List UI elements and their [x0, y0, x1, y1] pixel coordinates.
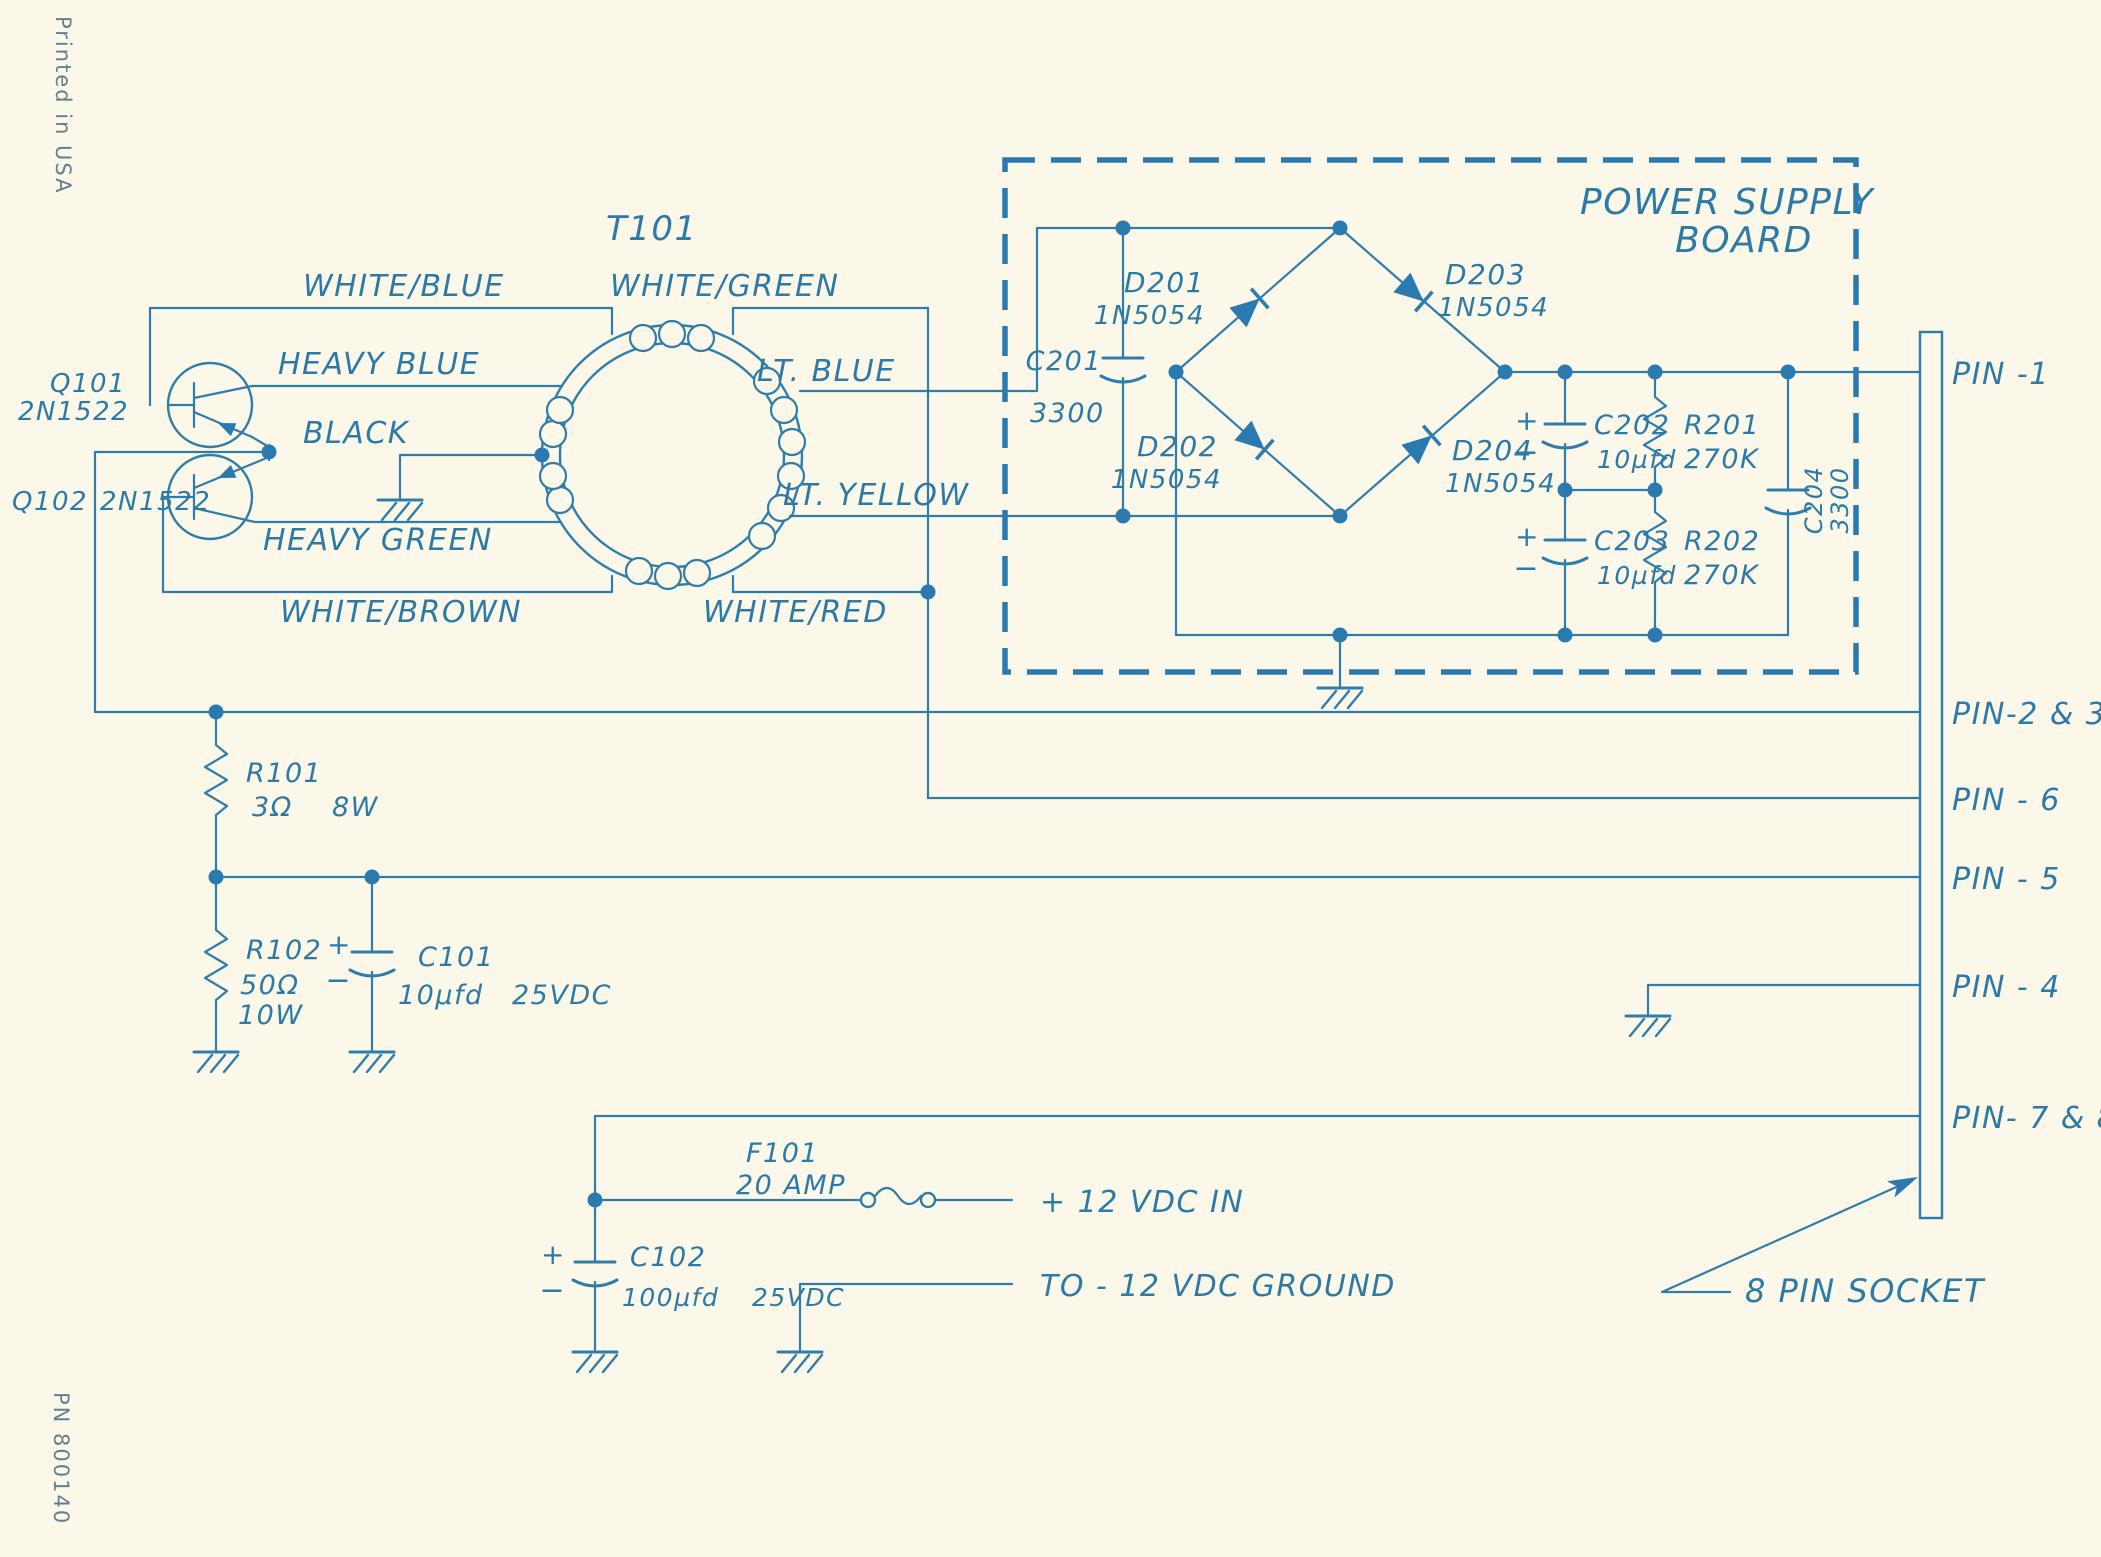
diode-d201-icon	[1229, 289, 1268, 328]
c102-minus-sign: −	[539, 1273, 566, 1308]
c101-ref-label: C101	[418, 942, 494, 973]
black-ground-icon	[378, 500, 422, 520]
d202-part-label: 1N5054	[1111, 465, 1222, 495]
pin5-label: PIN - 5	[1952, 862, 2061, 897]
c101-ground-icon	[350, 1052, 394, 1072]
d203-part-label: 1N5054	[1438, 293, 1549, 323]
c203-minus-sign: −	[1513, 551, 1540, 586]
pin4-ground-icon	[1626, 1016, 1670, 1036]
schematic-drawing: Printed in USA PN 800140 Q101 2N1522 Q10…	[0, 0, 2101, 1557]
socket-label: 8 PIN SOCKET	[1745, 1272, 1986, 1310]
c102-ground-icon	[573, 1352, 617, 1372]
capacitor-c203	[1543, 490, 1587, 635]
q101-part-label: 2N1522	[18, 397, 129, 427]
white-red-label: WHITE/RED	[703, 595, 888, 630]
transistor-q101	[168, 363, 269, 447]
c202-plus-sign: +	[1515, 404, 1540, 437]
c101-rating-label: 25VDC	[512, 980, 612, 1011]
board-ground-icon	[1318, 688, 1362, 708]
minus12-ground-icon	[778, 1352, 822, 1372]
board-title-line2: BOARD	[1675, 220, 1813, 261]
c202-minus-sign: −	[1513, 435, 1540, 470]
r102-power-label: 10W	[238, 1000, 304, 1031]
resistor-r102	[205, 877, 227, 1050]
pin6-label: PIN - 6	[1952, 783, 2061, 818]
q102-part-label: 2N1522	[100, 487, 211, 517]
q101-emitter-arrow-icon	[215, 417, 236, 437]
r201-value-label: 270K	[1684, 444, 1760, 475]
f101-value-label: 20 AMP	[736, 1170, 846, 1201]
q102-emitter-arrow-icon	[215, 465, 236, 485]
c101-minus-sign: −	[325, 963, 352, 998]
white-red-wire	[733, 576, 928, 592]
c202-ref-label: C202	[1594, 410, 1670, 441]
lt-blue-label: LT. BLUE	[757, 354, 896, 389]
pin1-label: PIN -1	[1952, 357, 2050, 392]
lt-yellow-label: LT. YELLOW	[783, 478, 970, 513]
d204-part-label: 1N5054	[1445, 469, 1556, 499]
c202-value-label: 10µfd	[1597, 445, 1677, 474]
f101-ref-label: F101	[746, 1138, 819, 1169]
plus12-label: + 12 VDC IN	[1040, 1185, 1244, 1220]
board-title-line1: POWER SUPPLY	[1580, 182, 1876, 223]
part-number-text: PN 800140	[49, 1392, 73, 1525]
capacitor-c101	[350, 877, 394, 1050]
r102-ground-icon	[194, 1052, 238, 1072]
white-green-wire	[733, 308, 928, 334]
white-brown-label: WHITE/BROWN	[280, 595, 522, 630]
c102-value-label: 100µfd	[622, 1283, 719, 1312]
capacitor-c102	[573, 1200, 617, 1350]
r101-power-label: 8W	[332, 792, 379, 823]
black-label: BLACK	[303, 416, 410, 451]
c102-plus-sign: +	[541, 1238, 566, 1271]
pin23-label: PIN-2 & 3	[1952, 697, 2101, 732]
q101-ref-label: Q101	[50, 369, 126, 399]
c101-value-label: 10µfd	[398, 980, 484, 1011]
c203-value-label: 10µfd	[1597, 561, 1677, 590]
c102-ref-label: C102	[630, 1242, 706, 1273]
pin78-label: PIN- 7 & 8	[1952, 1101, 2101, 1136]
heavy-green-label: HEAVY GREEN	[263, 523, 493, 558]
socket-arrowhead-icon	[1887, 1169, 1922, 1198]
d201-ref-label: D201	[1124, 266, 1205, 299]
q102-ref-label: Q102	[12, 487, 88, 517]
pin4-label: PIN - 4	[1952, 970, 2061, 1005]
minus12-label: TO - 12 VDC GROUND	[1040, 1269, 1396, 1304]
printed-in-usa-text: Printed in USA	[51, 16, 75, 195]
r101-ref-label: R101	[246, 758, 322, 789]
c201-value-label: 3300	[1030, 398, 1105, 429]
c203-ref-label: C203	[1594, 526, 1670, 557]
d203-ref-label: D203	[1445, 258, 1526, 291]
c204-value-label: 3300	[1826, 466, 1854, 533]
d202-ref-label: D202	[1137, 430, 1218, 463]
r102-ref-label: R102	[246, 935, 322, 966]
socket-bar	[1920, 332, 1942, 1218]
emitter-junction-feed-wire	[95, 445, 269, 712]
r102-value-label: 50Ω	[240, 970, 300, 1001]
c201-ref-label: C201	[1026, 346, 1102, 377]
resistor-r101	[205, 712, 227, 877]
black-wire	[400, 455, 542, 498]
white-blue-label: WHITE/BLUE	[303, 269, 505, 304]
c102-rating-label: 25VDC	[752, 1283, 845, 1312]
white-green-label: WHITE/GREEN	[610, 269, 839, 304]
r202-ref-label: R202	[1684, 526, 1760, 557]
schematic-page: Printed in USA PN 800140 Q101 2N1522 Q10…	[0, 0, 2101, 1557]
r202-value-label: 270K	[1684, 560, 1760, 591]
pin4-wire	[1648, 985, 1920, 1014]
heavy-blue-label: HEAVY BLUE	[278, 347, 480, 382]
t101-ref-label: T101	[606, 209, 698, 249]
c101-plus-sign: +	[327, 928, 352, 961]
c204-ref-label: C204	[1800, 466, 1828, 535]
r101-value-label: 3Ω	[252, 792, 293, 823]
r201-ref-label: R201	[1684, 410, 1760, 441]
c203-plus-sign: +	[1515, 520, 1540, 553]
d201-part-label: 1N5054	[1094, 301, 1205, 331]
